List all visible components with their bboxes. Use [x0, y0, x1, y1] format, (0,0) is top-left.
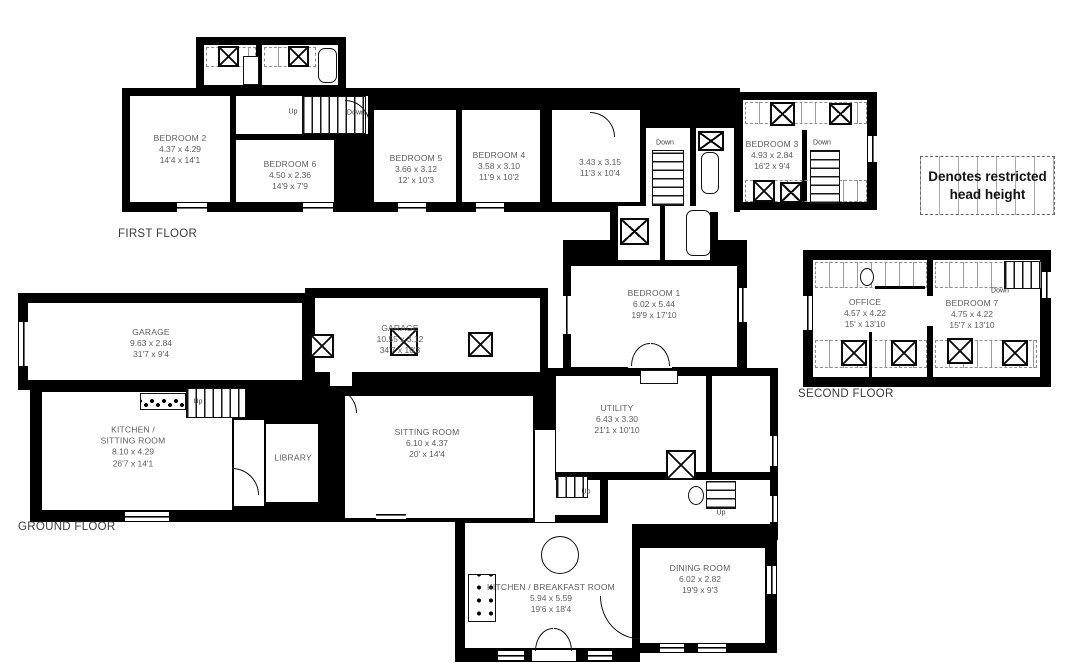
room-dim-imperial: 34'7 x 10'3 [377, 346, 424, 357]
room-name: OFFICE [844, 297, 886, 308]
room-dim-imperial: 19'6 x 18'4 [487, 605, 615, 616]
hallway-rear [608, 480, 770, 524]
corridor-ground [535, 430, 555, 522]
room-label: LIBRARY [274, 452, 312, 463]
stairs [810, 150, 840, 204]
room-name: GARAGE [377, 323, 424, 334]
cupboard-icon [243, 56, 259, 85]
legend-box: Denotes restricted head height [920, 156, 1055, 215]
skylight-icon [770, 102, 795, 126]
room-name: BEDROOM 6 [264, 159, 317, 170]
room-name: BEDROOM 4 [473, 150, 526, 161]
skylight-icon [310, 334, 334, 358]
room-label: OFFICE 4.57 x 4.22 15' x 13'10 [844, 297, 886, 331]
room-dim-imperial: 12' x 10'3 [390, 176, 443, 187]
skylight-icon [1002, 340, 1028, 366]
floor-label-ground: GROUND FLOOR [18, 521, 116, 533]
room-name: SITTING ROOM [101, 436, 166, 447]
partition-wall [875, 286, 925, 289]
toilet-icon [688, 486, 704, 505]
window [588, 651, 612, 660]
stairs-direction-label: Up [582, 489, 591, 496]
stairs-direction-label: Down [813, 140, 831, 147]
skylight-icon [841, 340, 867, 366]
room-dim-metric: 3.58 x 3.10 [473, 161, 526, 172]
floorplan-canvas: Up Down Down Down BEDROOM 2 4.37 x 4.29 … [0, 0, 1079, 665]
partition-wall [869, 332, 872, 377]
skylight-icon [829, 103, 852, 125]
window [868, 136, 877, 162]
window [177, 203, 207, 212]
room-label: 3.43 x 3.15 11'3 x 10'4 [579, 157, 621, 179]
window [125, 512, 169, 521]
room-label: BEDROOM 2 4.37 x 4.29 14'4 x 14'1 [154, 133, 207, 167]
room-name: DINING ROOM [670, 563, 731, 574]
room-dim-metric: 5.94 x 5.59 [487, 593, 615, 604]
window [398, 203, 426, 212]
room-dim-metric: 3.43 x 3.15 [579, 157, 621, 168]
room-dim-metric: 10.55 x 3.12 [377, 334, 424, 345]
window [498, 651, 524, 660]
skylight-icon [891, 340, 917, 366]
window [303, 203, 333, 212]
room-name: SITTING ROOM [395, 427, 460, 438]
hob-icon [140, 393, 186, 410]
room-dim-imperial: 16'2 x 9'4 [746, 162, 799, 173]
window [767, 566, 776, 594]
room-dim-metric: 9.63 x 2.84 [130, 338, 172, 349]
room-dim-imperial: 20' x 14'4 [395, 450, 460, 461]
room-dim-imperial: 14'4 x 14'1 [154, 156, 207, 167]
room-dim-imperial: 21'1 x 10'10 [594, 426, 639, 437]
partition-wall [660, 206, 665, 260]
skylight-icon [780, 182, 802, 203]
room-dim-imperial: 26'7 x 14'1 [101, 458, 166, 469]
door-opening [330, 370, 352, 386]
window [769, 496, 777, 522]
skylight-icon [698, 131, 724, 151]
room-label: KITCHEN / SITTING ROOM 8.10 x 4.29 26'7 … [101, 425, 166, 470]
room-label: UTILITY 6.43 x 3.30 21'1 x 10'10 [594, 403, 639, 437]
window [769, 436, 777, 466]
room-dim-metric: 6.10 x 4.37 [395, 438, 460, 449]
room-label: DINING ROOM 6.02 x 2.82 19'9 x 9'3 [670, 563, 731, 597]
window [660, 644, 684, 652]
stairs [706, 481, 736, 509]
stairs-direction-label: Up [717, 510, 726, 517]
stairs-direction-label: Down [656, 140, 674, 147]
room-label: BEDROOM 7 4.75 x 4.22 15'7 x 13'10 [946, 298, 999, 332]
window [376, 510, 406, 519]
room-label: BEDROOM 1 6.02 x 5.44 19'9 x 17'10 [628, 288, 681, 322]
room-label: BEDROOM 3 4.93 x 2.84 16'2 x 9'4 [746, 139, 799, 173]
room-name: KITCHEN / [101, 425, 166, 436]
skylight-icon [753, 180, 775, 202]
toilet-icon [860, 268, 874, 286]
corridor-utility [712, 376, 770, 472]
table-icon [541, 536, 579, 574]
stairs-direction-label: Up [289, 109, 298, 116]
sink-icon [640, 370, 678, 384]
bathtub-icon [701, 152, 719, 194]
legend-text: Denotes restricted head height [928, 168, 1047, 203]
window [739, 288, 747, 322]
floor-label-second: SECOND FLOOR [798, 388, 894, 400]
window [698, 644, 726, 652]
door-opening [532, 650, 576, 661]
bathtub-icon [686, 210, 711, 256]
window [476, 203, 504, 212]
skylight-icon [288, 46, 309, 67]
skylight-icon [468, 332, 493, 357]
room-dim-metric: 4.93 x 2.84 [746, 150, 799, 161]
room-name: BEDROOM 1 [628, 288, 681, 299]
skylight-icon [218, 46, 239, 67]
room-dim-metric: 3.66 x 3.12 [390, 164, 443, 175]
room-name: BEDROOM 7 [946, 298, 999, 309]
room-name: LIBRARY [274, 452, 312, 463]
stairs-direction-label: Up [194, 399, 203, 406]
room-garage2 [315, 298, 540, 372]
stairs [1004, 261, 1042, 289]
room-dim-metric: 6.02 x 5.44 [628, 299, 681, 310]
room-label: BEDROOM 6 4.50 x 2.36 14'9 x 7'9 [264, 159, 317, 193]
room-dim-imperial: 15'7 x 13'10 [946, 321, 999, 332]
room-name: KITCHEN / BREAKFAST ROOM [487, 582, 615, 593]
room-dim-imperial: 14'9 x 7'9 [264, 182, 317, 193]
room-name: GARAGE [130, 327, 172, 338]
room-dim-metric: 6.02 x 2.82 [670, 574, 731, 585]
room-dim-imperial: 19'9 x 17'10 [628, 311, 681, 322]
room-dim-metric: 4.57 x 4.22 [844, 308, 886, 319]
room-dim-imperial: 19'9 x 9'3 [670, 586, 731, 597]
room-dim-imperial: 11'9 x 10'2 [473, 173, 526, 184]
room-dim-metric: 4.50 x 2.36 [264, 170, 317, 181]
bathtub-icon [318, 48, 337, 83]
window [803, 296, 812, 330]
window [1042, 272, 1051, 298]
skylight-icon [666, 450, 696, 480]
room-label: KITCHEN / BREAKFAST ROOM 5.94 x 5.59 19'… [487, 582, 615, 616]
stairs [652, 150, 684, 206]
room-dim-metric: 8.10 x 4.29 [101, 447, 166, 458]
room-name: BEDROOM 5 [390, 153, 443, 164]
room-label: BEDROOM 5 3.66 x 3.12 12' x 10'3 [390, 153, 443, 187]
room-dim-metric: 4.37 x 4.29 [154, 144, 207, 155]
room-name: BEDROOM 2 [154, 133, 207, 144]
window [19, 322, 28, 366]
room-label: GARAGE 10.55 x 3.12 34'7 x 10'3 [377, 323, 424, 357]
door-opening [927, 296, 933, 326]
skylight-icon [947, 338, 973, 364]
room-label: SITTING ROOM 6.10 x 4.37 20' x 14'4 [395, 427, 460, 461]
room-dim-imperial: 15' x 13'10 [844, 320, 886, 331]
room-label: GARAGE 9.63 x 2.84 31'7 x 9'4 [130, 327, 172, 361]
skylight-icon [620, 218, 649, 245]
stairs-direction-label: Down [991, 288, 1009, 295]
room-label: BEDROOM 4 3.58 x 3.10 11'9 x 10'2 [473, 150, 526, 184]
room-name: UTILITY [594, 403, 639, 414]
room-dim-metric: 4.75 x 4.22 [946, 309, 999, 320]
floor-label-first: FIRST FLOOR [118, 228, 197, 240]
room-dim-imperial: 31'7 x 9'4 [130, 350, 172, 361]
room-dim-imperial: 11'3 x 10'4 [579, 168, 621, 179]
room-dim-metric: 6.43 x 3.30 [594, 414, 639, 425]
window [563, 296, 571, 334]
room-name: BEDROOM 3 [746, 139, 799, 150]
